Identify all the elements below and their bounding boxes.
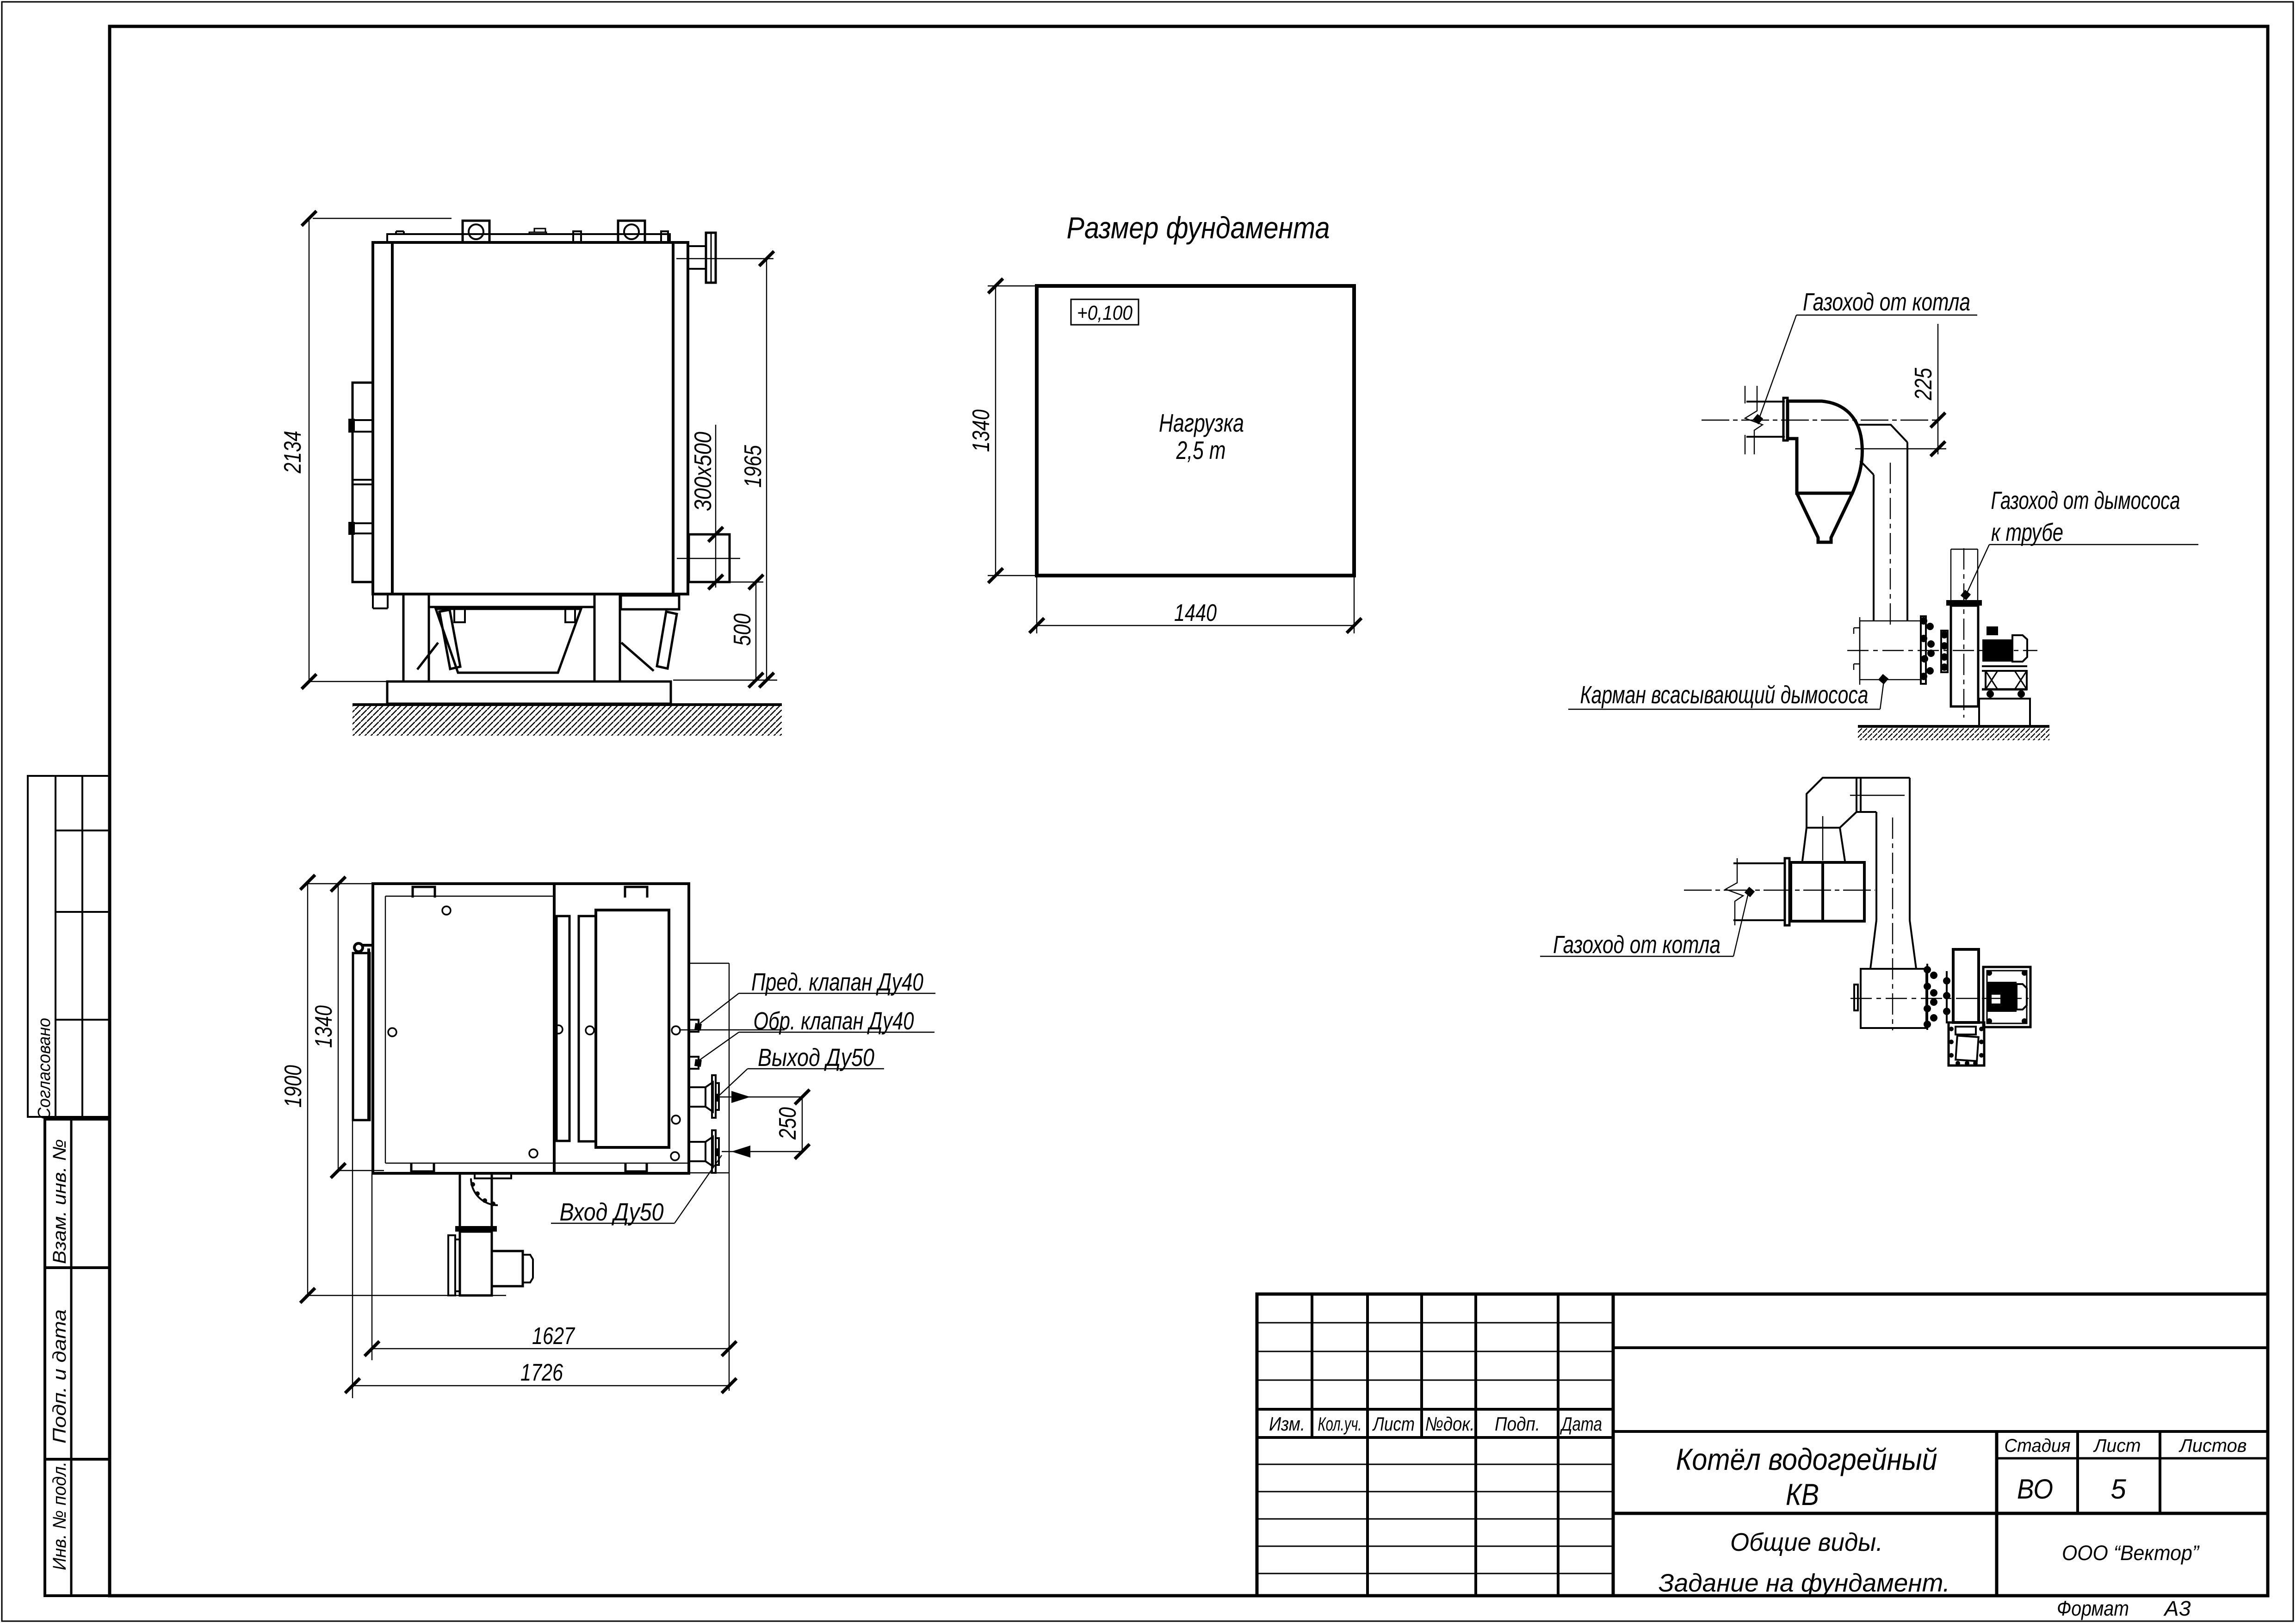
svg-text:Подп.: Подп. bbox=[1495, 1413, 1540, 1435]
svg-text:Изм.: Изм. bbox=[1269, 1413, 1305, 1435]
svg-text:Размер фундамента: Размер фундамента bbox=[1067, 211, 1330, 245]
svg-text:Листов: Листов bbox=[2178, 1436, 2247, 1456]
svg-text:Выход Ду50: Выход Ду50 bbox=[758, 1044, 874, 1072]
svg-text:2134: 2134 bbox=[279, 431, 306, 474]
svg-text:Общие виды.: Общие виды. bbox=[1730, 1528, 1883, 1556]
svg-text:Нагрузка: Нагрузка bbox=[1159, 409, 1244, 437]
svg-text:300х500: 300х500 bbox=[690, 432, 717, 511]
svg-text:225: 225 bbox=[1910, 367, 1937, 401]
svg-text:Газоход от котла: Газоход от котла bbox=[1553, 931, 1720, 959]
svg-text:+0,100: +0,100 bbox=[1077, 302, 1133, 324]
svg-text:Задание на фундамент.: Задание на фундамент. bbox=[1659, 1568, 1950, 1597]
svg-text:Подп. и дата: Подп. и дата bbox=[50, 1309, 70, 1443]
svg-text:1627: 1627 bbox=[532, 1323, 576, 1350]
svg-text:500: 500 bbox=[729, 613, 756, 646]
svg-text:Лист: Лист bbox=[1372, 1413, 1415, 1435]
svg-text:250: 250 bbox=[774, 1107, 801, 1140]
svg-text:№док.: №док. bbox=[1425, 1413, 1475, 1435]
svg-text:Согласовано: Согласовано bbox=[35, 1018, 54, 1120]
svg-text:Дата: Дата bbox=[1560, 1413, 1602, 1435]
svg-text:Стадия: Стадия bbox=[2005, 1436, 2071, 1456]
svg-text:Кол.уч.: Кол.уч. bbox=[1318, 1413, 1362, 1435]
svg-text:КВ: КВ bbox=[1786, 1477, 1819, 1511]
svg-text:1340: 1340 bbox=[968, 409, 995, 452]
svg-text:5: 5 bbox=[2110, 1474, 2126, 1505]
svg-text:1340: 1340 bbox=[310, 1005, 337, 1048]
svg-text:1900: 1900 bbox=[280, 1065, 307, 1108]
svg-text:Обр. клапан Ду40: Обр. клапан Ду40 bbox=[754, 1007, 914, 1035]
svg-text:Инв. № подл.: Инв. № подл. bbox=[50, 1462, 70, 1570]
svg-text:1965: 1965 bbox=[740, 445, 767, 488]
svg-text:ВО: ВО bbox=[2017, 1474, 2053, 1505]
svg-text:Карман всасывающий дымососа: Карман всасывающий дымососа bbox=[1580, 681, 1869, 709]
svg-text:А3: А3 bbox=[2163, 1597, 2191, 1620]
svg-text:Вход Ду50: Вход Ду50 bbox=[560, 1198, 664, 1226]
svg-text:Лист: Лист bbox=[2093, 1436, 2141, 1456]
svg-text:Газоход от дымососа: Газоход от дымососа bbox=[1991, 487, 2180, 514]
svg-text:Формат: Формат bbox=[2057, 1597, 2129, 1620]
svg-text:1726: 1726 bbox=[520, 1359, 563, 1386]
svg-text:к трубе: к трубе bbox=[1991, 519, 2063, 546]
svg-text:Пред. клапан Ду40: Пред. клапан Ду40 bbox=[751, 968, 923, 996]
svg-text:Котёл водогрейный: Котёл водогрейный bbox=[1676, 1442, 1937, 1476]
svg-text:2,5 т: 2,5 т bbox=[1176, 436, 1226, 465]
svg-text:Взам. инв. №: Взам. инв. № bbox=[50, 1139, 70, 1264]
svg-text:Газоход от котла: Газоход от котла bbox=[1803, 288, 1970, 316]
svg-text:1440: 1440 bbox=[1174, 600, 1217, 626]
svg-text:ООО “Вектор”: ООО “Вектор” bbox=[2062, 1541, 2200, 1565]
